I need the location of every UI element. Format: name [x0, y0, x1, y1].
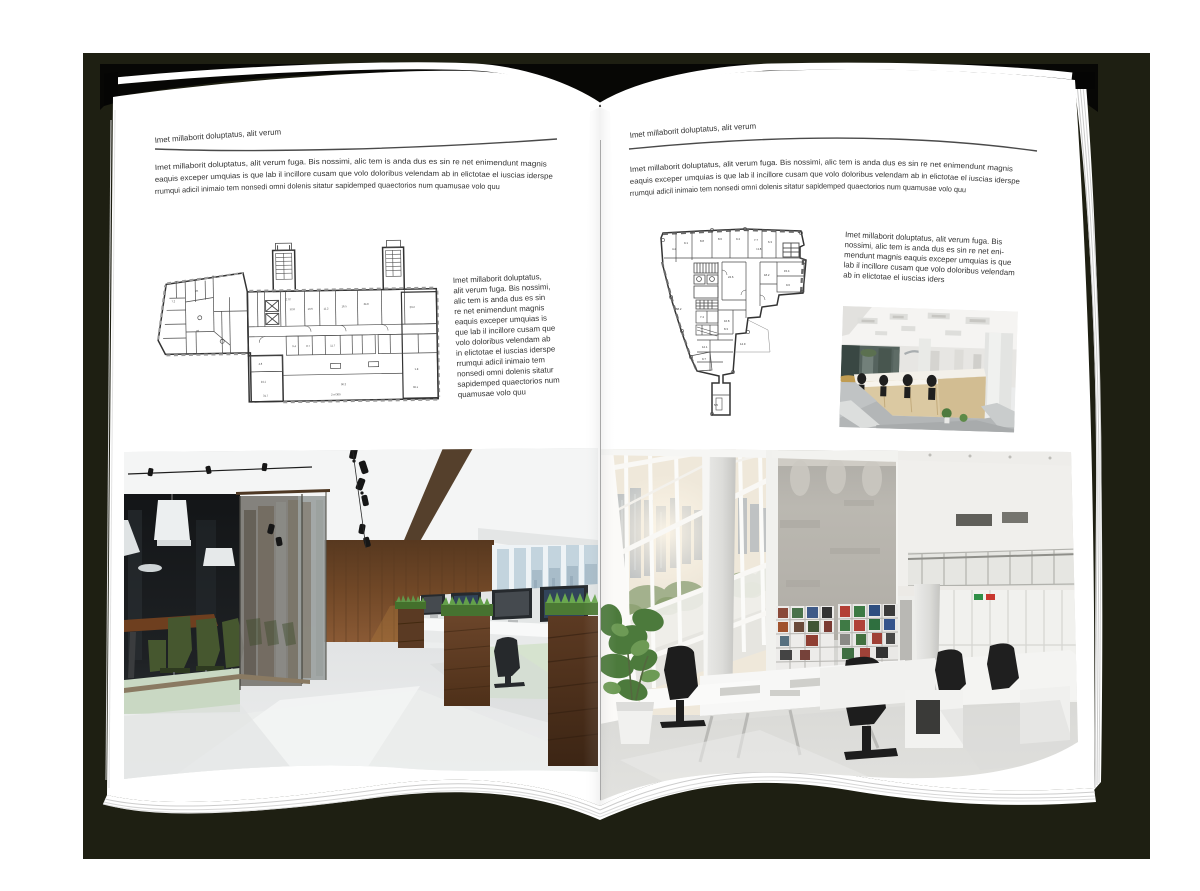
svg-text:8.8: 8.8: [700, 239, 704, 243]
svg-text:6.3: 6.3: [768, 240, 772, 244]
svg-text:7.2: 7.2: [171, 299, 175, 303]
svg-text:12.8: 12.8: [290, 307, 296, 311]
svg-text:90.3: 90.3: [341, 382, 347, 386]
svg-text:8.6: 8.6: [718, 237, 722, 241]
svg-text:5.5: 5.5: [714, 403, 718, 407]
svg-text:10.6: 10.6: [308, 307, 314, 311]
svg-text:9.7: 9.7: [702, 357, 706, 361]
svg-text:8.3: 8.3: [724, 327, 728, 331]
svg-text:33.2: 33.2: [410, 305, 416, 309]
svg-text:2 of 300: 2 of 300: [331, 392, 341, 396]
svg-text:9.4: 9.4: [736, 237, 740, 241]
svg-text:4.8: 4.8: [259, 362, 263, 366]
svg-text:8.7: 8.7: [306, 344, 310, 348]
svg-text:14.9: 14.9: [740, 342, 746, 346]
svg-text:9.4: 9.4: [292, 344, 296, 348]
svg-text:11.7: 11.7: [330, 343, 335, 347]
svg-text:11.2: 11.2: [324, 306, 329, 310]
svg-text:36.1: 36.1: [413, 385, 419, 389]
svg-text:15.4: 15.4: [784, 269, 790, 273]
svg-text:7.4: 7.4: [700, 315, 704, 319]
svg-text:24.8: 24.8: [364, 302, 370, 306]
svg-text:5.8: 5.8: [415, 367, 419, 371]
svg-text:12.1: 12.1: [702, 345, 708, 349]
svg-text:31.7: 31.7: [263, 394, 269, 398]
svg-text:58.2: 58.2: [676, 307, 682, 311]
svg-text:l 4.8: l 4.8: [756, 247, 762, 251]
svg-text:16.8: 16.8: [724, 319, 730, 323]
svg-text:18.2: 18.2: [764, 273, 770, 277]
svg-text:4.2: 4.2: [672, 247, 676, 251]
svg-text:9.6: 9.6: [786, 283, 790, 287]
svg-text:24.6: 24.6: [728, 275, 734, 279]
svg-text:7.7: 7.7: [754, 238, 758, 242]
svg-text:2.72: 2.72: [285, 297, 291, 301]
svg-text:9.1: 9.1: [684, 241, 688, 245]
svg-text:16.5: 16.5: [342, 304, 348, 308]
svg-text:24.1: 24.1: [261, 380, 267, 384]
